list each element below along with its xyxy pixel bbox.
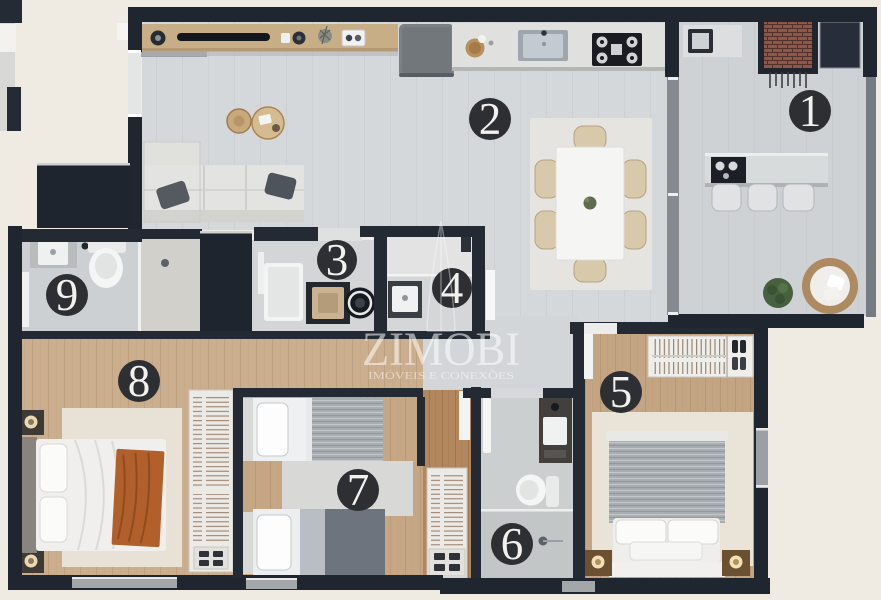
svg-text:2: 2 xyxy=(479,94,502,144)
svg-text:5: 5 xyxy=(610,367,633,417)
svg-text:3: 3 xyxy=(326,235,349,285)
svg-text:IMÓVEIS E CONEXÕES: IMÓVEIS E CONEXÕES xyxy=(368,370,514,382)
svg-text:6: 6 xyxy=(501,519,524,569)
svg-text:8: 8 xyxy=(128,356,151,406)
svg-text:ZIMOBI: ZIMOBI xyxy=(362,323,520,376)
svg-text:7: 7 xyxy=(347,465,370,515)
svg-text:9: 9 xyxy=(56,270,79,320)
svg-text:1: 1 xyxy=(799,86,822,136)
